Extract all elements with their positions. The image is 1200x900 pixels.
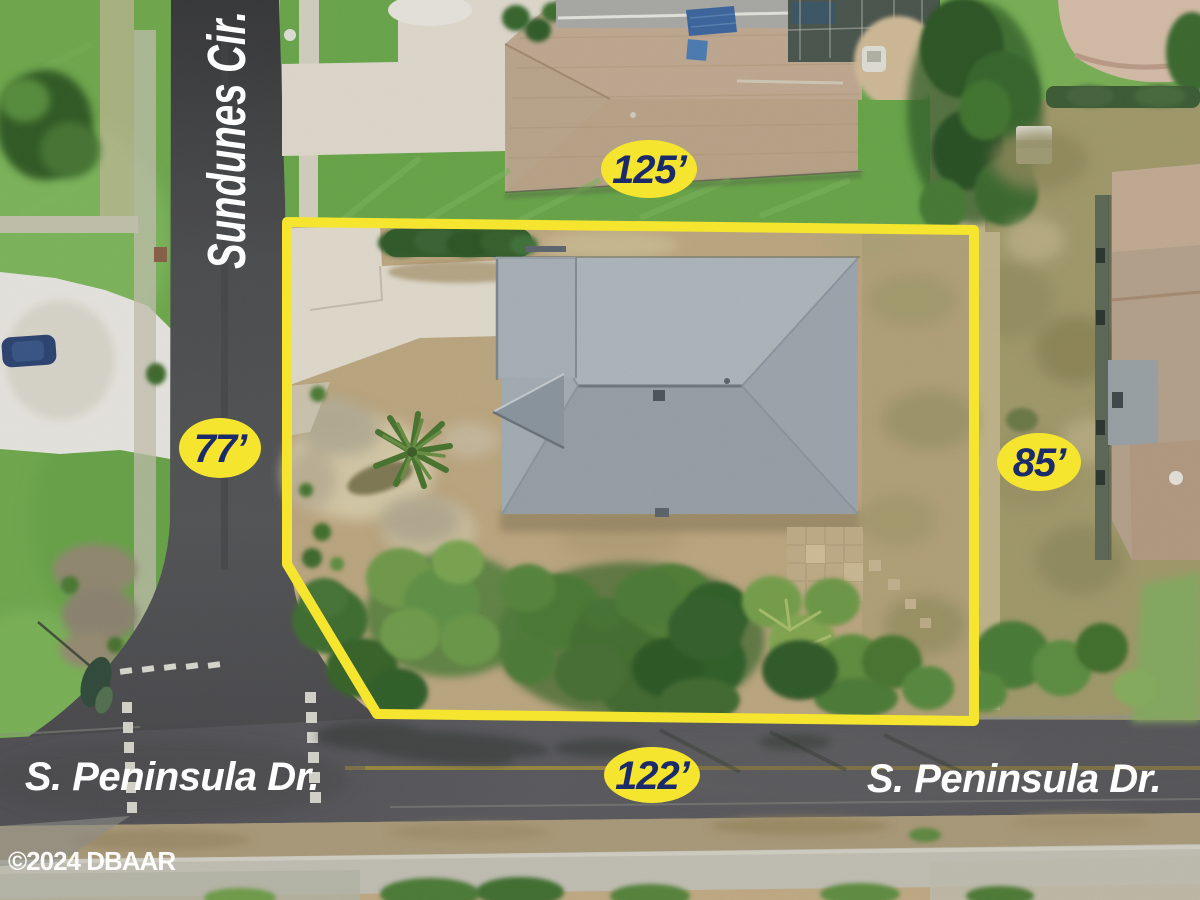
svg-text:125’: 125’: [612, 148, 688, 192]
svg-text:Sundunes Cir.: Sundunes Cir.: [197, 11, 257, 269]
svg-text:122’: 122’: [615, 754, 691, 798]
svg-text:S. Peninsula Dr.: S. Peninsula Dr.: [25, 755, 319, 799]
svg-text:©2024 DBAAR: ©2024 DBAAR: [8, 846, 176, 876]
svg-text:77’: 77’: [194, 427, 248, 471]
svg-text:85’: 85’: [1013, 441, 1067, 485]
svg-text:S. Peninsula Dr.: S. Peninsula Dr.: [867, 757, 1161, 801]
